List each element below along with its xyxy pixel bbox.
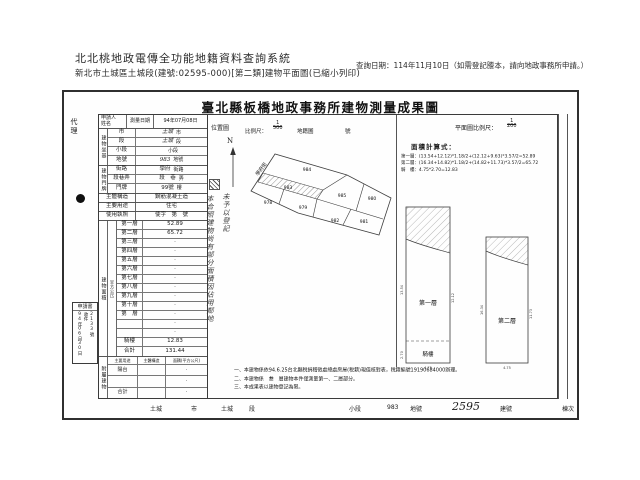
floor-row: 第七層 · [117,275,207,284]
punch-hole-dot [76,194,85,203]
floor-row: 第四層 · [117,248,207,257]
location-map-label: 位置圖 [211,123,229,132]
area-calc-line: 第一層：(13.54+12.12)*1.18/2+(12.12+9.63)*3.… [401,153,569,160]
agent-label: 代理 [69,118,79,136]
area-calc-title: 面積計算式： [411,141,456,151]
site-row: 市 土城市 [108,129,207,138]
location-scale-label: 比例尺： [245,127,267,135]
notes-block: 一、本建物係依94.6.25台北縣稅捐稽徵處總處房屋(稅籍)現值核對表，稅籍編號… [234,366,556,391]
floor-row: 第九層 · [117,293,207,302]
survey-date-value: 94年07月08日 [154,115,207,128]
floor-plan-drawing: 第一層 騎樓 13.54 12.12 2.70 4.75 第二層 16.34 1… [398,203,538,371]
floor-row: 第 層 · [117,311,207,320]
document-subtitle: 新北市土城區土城段(建號:02595-000)[第二類]建物平面圖(已縮小列印) [75,67,360,79]
block-unit: 棟次 [562,404,574,413]
middle-right-divider [396,115,397,367]
section-value: 土城 [221,404,233,413]
door-row: 街路 學府街路 [108,166,207,175]
location-scale-fraction: 1 500 [273,121,283,131]
area-calc-line: 第二層：(16.34+14.82)*1.18/2+(14.82+11.73)*3… [401,160,569,167]
parcel-number: 982 [331,218,340,224]
hatch-legend-icon [209,179,220,190]
floor-area-unit: （平方公尺） [108,221,117,356]
north-arrow-icon [228,147,238,189]
applicant-label: 申請人 姓名 [99,115,127,128]
floor-row: · [117,329,207,338]
dim-label: 12.12 [451,293,455,303]
site-group-label: 建物坐基 [99,129,108,165]
door-row: 段巷弄 段 巷弄 [108,175,207,184]
dim-label: 16.34 [480,304,484,315]
query-date: 查詢日期：114年11月10日（如需登記謄本，請向地政事務所申請。） [356,60,588,71]
application-title: 申請書 [73,303,97,311]
building-number-handwritten: 2595 [452,400,480,413]
city-value: 土城 [150,404,162,413]
section-unit: 段 [249,404,255,413]
site-row: 段 土城段 [108,138,207,147]
cadastral-sketch: 984 983 978 979 985 980 981 982 學府街 [243,145,393,255]
note-line: 三、本成果表以建物登記為限。 [234,383,556,391]
plan-scale-label: 平面圖比例尺： [455,123,497,132]
parcel-number-subject: 983 [284,185,293,191]
application-number: 2133號 [88,311,94,363]
parcel-number-value: 983 [387,404,398,411]
annex-row: 合計 · [108,388,207,398]
plan1-label: 第一層 [419,299,437,307]
door-group: 建物門牌 街路 學府街路 段巷弄 段 巷弄 [99,166,207,194]
bottom-identification-strip: 土城 市 土城 段 小段 983 地號 2595 建號 棟次 [64,399,577,416]
applicant-row: 申請人 姓名 測量日期 94年07月08日 [99,115,207,129]
floor-row: 合計 131.44 [117,347,207,356]
survey-date-label: 測量日期 [127,115,154,128]
annex-row: · [108,376,207,387]
dim-label: 11.73 [529,309,533,319]
site-group: 建物坐基 市 土城市 段 土城段 [99,129,207,166]
floor-row: 第一層 52.89 [117,221,207,230]
area-calc-lines: 第一層：(13.54+12.12)*1.18/2+(12.12+9.63)*3.… [401,153,569,173]
annex-row: 陽台 · [108,365,207,376]
north-label: N [227,137,233,145]
building-unit: 建號 [500,404,512,413]
system-title: 北北桃地政電傳全功能地籍資料查詢系統 [75,50,291,66]
survey-document-scan: 臺北縣板橋地政事務所建物測量成果圖 代理 申請書 94年06月30日 收件 21… [62,90,579,420]
site-row: 小段 小段 [108,147,207,156]
floor-row: 第五層 · [117,257,207,266]
parcel-unit: 地號 [410,404,422,413]
plan2-label: 第二層 [498,317,516,325]
parcel-number: 984 [303,167,312,173]
handwritten-note-left: 本合照建物尚有部分面積因佔用鄰地 [205,195,215,415]
sheet-number-label: 號 [345,127,351,135]
dim-label: 2.70 [400,351,404,359]
dim-label: 13.54 [400,284,404,295]
floor-row: · [117,320,207,329]
floor-row: 第十層 · [117,302,207,311]
plan-scale-fraction: 1 200 [507,119,517,129]
application-receipt-box: 申請書 94年06月30日 收件 2133號 [72,302,98,364]
site-row: 地號 983地號 [108,156,207,165]
area-calc-line: 騎 樓：4.75*2.70=12.83 [401,166,569,173]
parcel-number: 979 [299,205,308,211]
building-info-table: 申請人 姓名 測量日期 94年07月08日 建物坐基 市 土城市 [99,115,208,398]
floor-area-group: 建物面積 （平方公尺） 第一層 52.89 第二層 65.72 [99,221,207,357]
usage-row: 主要用途 住宅 [99,203,207,212]
parcel-number: 985 [338,193,347,199]
subsection-unit: 小段 [349,404,361,413]
note-line: 二、本建物係 叁 層建物本件僅測量第一、二層部分。 [234,374,556,382]
screenshot-root: { "header": { "system_title": "北北桃地政電傳全功… [0,0,640,480]
handwritten-note-right: 未予以登記 [221,193,231,273]
door-row: 門牌 99號樓 [108,184,207,193]
parcel-number: 978 [264,200,273,206]
floor-row: 騎樓 12.83 [117,338,207,347]
annex-header: 主要用途 主體構造 面積(平方公尺) [108,357,207,365]
note-line: 一、本建物係依94.6.25台北縣稅捐稽徵處總處房屋(稅籍)現值核對表，稅籍編號… [234,366,556,374]
cadastre-map-label: 地籍圖 [297,127,314,135]
door-group-label: 建物門牌 [99,166,108,193]
annex-group: 附屬建物 主要用途 主體構造 面積(平方公尺) 陽台 · [99,357,207,398]
city-unit: 市 [191,404,197,413]
parcel-number: 980 [368,196,377,202]
floor-row: 第六層 · [117,266,207,275]
floor-row: 第八層 · [117,284,207,293]
structure-row: 主體構造 鋼筋混凝土造 [99,194,207,203]
annex-group-label: 附屬建物 [99,357,108,398]
porch-label: 騎樓 [422,350,434,358]
parcel-number: 981 [360,219,369,225]
license-row: 使用執照 使字 第 號 [99,212,207,221]
floor-area-label: 建物面積 [99,221,108,356]
floor-row: 第三層 · [117,239,207,248]
binding-strip [558,114,568,399]
survey-form: 申請人 姓名 測量日期 94年07月08日 建物坐基 市 土城市 [98,114,558,399]
floor-row: 第二層 65.72 [117,230,207,239]
